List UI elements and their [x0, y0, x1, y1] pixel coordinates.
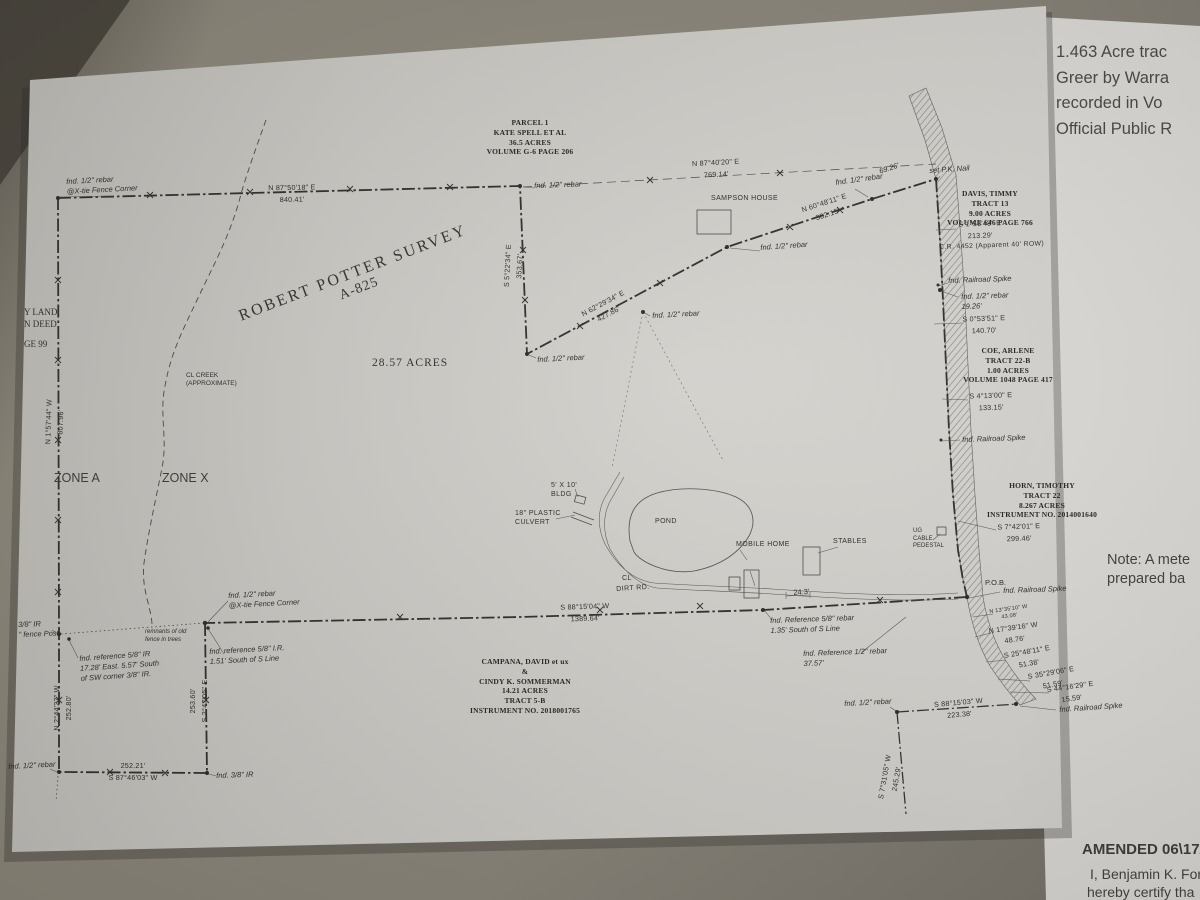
monument-rebar-xtie-south: fnd. 1/2" rebar @X-tie Fence Corner: [228, 587, 300, 611]
bearing-text: S 88°15'03" W: [934, 697, 984, 710]
reference-rebar-58: fnd. Reference 5/8" rebar 1.35' South of…: [770, 613, 855, 636]
feature-line: PEDESTAL: [913, 543, 944, 551]
remnants-note: remnants of old fence in trees: [145, 629, 186, 645]
corner-dot: [870, 197, 874, 201]
feature-line: CABLE: [913, 536, 944, 544]
reference-rebar-sw: fnd. reference 5/8" IR 17.28' East. 5.57…: [79, 648, 160, 684]
corner-dot: [518, 184, 522, 188]
monument-rebar-nw: fnd. 1/2" rebar @X-tie Fence Corner: [66, 173, 138, 197]
feature-line: CL CREEK: [186, 372, 237, 380]
culvert-label: 18" PLASTIC CULVERT: [515, 509, 561, 527]
bearing-text: N 1°57'44" W: [44, 399, 54, 444]
tract-acreage: 28.57 ACRES: [372, 357, 448, 369]
certification-line: hereby certify tha: [1087, 884, 1194, 900]
bearing-s24705: 253.60' S 2°47'05" E: [189, 680, 209, 723]
bearing-text: S 5°22'34" E: [503, 244, 514, 287]
culvert-lines: [571, 512, 594, 525]
corner-dot: [725, 245, 729, 249]
monument-rebar-topcenter: fnd. 1/2" rebar: [534, 179, 582, 191]
dirt-road-lines: [599, 472, 958, 600]
parcel-kate-spell: PARCEL 1 KATE SPELL ET AL 36.5 ACRES VOL…: [450, 118, 610, 157]
bearing-n15744: N 1°57'44" W 807.96': [44, 399, 66, 445]
note-line: remnants of old: [145, 629, 186, 637]
bearing-text: S 7°42'01" E: [997, 522, 1040, 532]
bearing-s52234: S 5°22'34" E 353.67': [503, 244, 525, 288]
parcel-line: Y LAND: [24, 306, 57, 318]
parcel-line: PARCEL 1: [450, 118, 610, 128]
corner-dot: [937, 284, 940, 287]
feature-line: UG: [913, 528, 944, 536]
bearing-text: S 4°13'00" E: [969, 391, 1012, 401]
parcel-line: TRACT 13: [930, 199, 1050, 209]
bearing-n24427: N 2°44'27" W 252.80': [53, 685, 73, 730]
offset-243: 24.3': [793, 587, 810, 598]
parcel-line: DAVIS, TIMMY: [930, 189, 1050, 199]
pond-label: POND: [655, 517, 677, 526]
distance-text: 252.80': [65, 685, 74, 730]
distance-text: 140.70': [963, 326, 1006, 336]
parcel-campana: CAMPANA, DAVID et ux & CINDY K. SOMMERMA…: [445, 657, 605, 716]
distance-text: 19.26': [961, 300, 1009, 312]
bearing-s41300: S 4°13'00" E 133.15': [969, 391, 1012, 413]
sampson-house-label: SAMPSON HOUSE: [711, 194, 778, 203]
monument-fence-post: 3/8" IR " fence Post: [18, 619, 59, 641]
bearing-s15343: S 1°53'43" E 213.29': [958, 219, 1001, 241]
note-line: fence in trees: [145, 637, 186, 645]
distance-text: 213.29': [959, 231, 1002, 241]
corner-dot: [641, 310, 645, 314]
stables-label: STABLES: [833, 537, 867, 546]
feature-line: BLDG: [551, 490, 577, 499]
flood-zone-x: ZONE X: [162, 471, 209, 485]
distance-text: 133.15': [970, 403, 1013, 413]
corner-dot: [56, 196, 60, 200]
corner-dot: [940, 439, 943, 442]
corner-dot: [934, 177, 938, 181]
parcel-line: 1.00 ACRES: [948, 366, 1068, 376]
bearing-text: S 0°53'51" E: [962, 314, 1005, 324]
ug-pedestal-label: UG CABLE PEDESTAL: [913, 528, 944, 551]
bearing-text: S 87°46'03" W: [109, 774, 158, 783]
bearing-text: S 88°15'04" W: [560, 602, 609, 612]
survey-photo: 1.463 Acre trac Greer by Warra recorded …: [0, 0, 1200, 900]
bearing-text: S 1°53'43" E: [958, 219, 1001, 229]
bearing-text: S 2°47'05" E: [201, 680, 210, 723]
parcel-line: VOLUME G-6 PAGE 206: [450, 147, 610, 157]
creek-label: CL CREEK (APPROXIMATE): [186, 372, 237, 388]
corner-dot: [57, 770, 61, 774]
amended-text: AMENDED 06\17/20: [1082, 841, 1200, 858]
parcel-line: TRACT 5-B: [445, 696, 605, 706]
distance-text: 1389.64': [561, 614, 610, 624]
parcel-line: 8.267 ACRES: [975, 501, 1109, 511]
monument-rebar-road: fnd. 1/2" rebar 19.26': [961, 290, 1009, 312]
side-document-text: 1.463 Acre trac Greer by Warra recorded …: [1056, 40, 1172, 143]
parcel-line: COE, ARLENE: [948, 346, 1068, 356]
corner-dot: [205, 771, 209, 775]
parcel-line: 14.21 ACRES: [445, 686, 605, 696]
corner-dot: [895, 710, 899, 714]
distance-text: 840.41': [268, 195, 316, 204]
feature-line: 5' X 10': [551, 481, 577, 490]
dirt-road-cl-label: CL: [622, 574, 632, 583]
side-doc-line: Official Public R: [1056, 117, 1172, 143]
feature-line: (APPROXIMATE): [186, 380, 237, 388]
reference-rebar-12: fnd. Reference 1/2" rebar 37.57': [803, 646, 888, 669]
bearing-text: N 2°44'27" W: [53, 685, 62, 730]
parcel-line: 9.00 ACRES: [930, 209, 1050, 219]
mobile-home-outline: [744, 570, 759, 598]
feature-line: 18" PLASTIC: [515, 509, 561, 518]
corner-dot: [938, 288, 942, 292]
monument-text: " fence Post: [18, 629, 59, 641]
south-adjoiner-lines: [897, 704, 1018, 814]
bearing-s74201: S 7°42'01" E 299.46': [997, 522, 1040, 544]
parcel-line: TRACT 22: [975, 491, 1109, 501]
sampson-house-outline: [697, 210, 731, 234]
side-doc-line: recorded in Vo: [1056, 91, 1172, 117]
stables-outline: [803, 547, 820, 575]
parcel-coe: COE, ARLENE TRACT 22-B 1.00 ACRES VOLUME…: [948, 346, 1068, 385]
parcel-line: GE 99: [24, 338, 57, 350]
corner-dot: [761, 608, 765, 612]
monument-text: fnd. 1/2" rebar: [961, 290, 1009, 302]
distance-text: 253.60': [189, 680, 198, 723]
parcel-line: CINDY K. SOMMERMAN: [445, 677, 605, 687]
distance-text: 807.96': [56, 399, 66, 444]
parcel-line: &: [445, 667, 605, 677]
interior-fence-dotted: [612, 312, 724, 468]
parcel-line: INSTRUMENT NO. 2018001765: [445, 706, 605, 716]
parcel-line: VOLUME 1048 PAGE 417: [948, 375, 1068, 385]
parcel-edge-clipped: Y LAND N DEED GE 99: [24, 306, 57, 350]
note-line: Note: A mete: [1107, 551, 1190, 570]
parcel-line: 36.5 ACRES: [450, 138, 610, 148]
side-doc-line: Greer by Warra: [1056, 66, 1172, 92]
monument-ir-38: fnd. 3/8" IR: [216, 770, 254, 781]
bearing-s881504: S 88°15'04" W 1389.64': [560, 602, 610, 624]
distance-text: 252.21': [109, 762, 158, 771]
bearing-n875018: N 87°50'18" E 840.41': [268, 183, 316, 204]
bearing-s05351: S 0°53'51" E 140.70': [962, 314, 1005, 336]
parcel-line: KATE SPELL ET AL: [450, 128, 610, 138]
certification-line: I, Benjamin K. For: [1090, 866, 1200, 882]
note-text: Note: A mete prepared ba: [1107, 551, 1190, 589]
note-line: prepared ba: [1107, 570, 1190, 589]
mobile-home-label: MOBILE HOME: [736, 540, 790, 549]
corner-dot: [1014, 702, 1018, 706]
bearing-n874020: N 87°40'20" E 769.14': [692, 158, 740, 181]
parcel-line: HORN, TIMOTHY: [975, 481, 1109, 491]
corner-dot: [525, 352, 529, 356]
parcel-line: TRACT 22-B: [948, 356, 1068, 366]
parcel-line: CAMPANA, DAVID et ux: [445, 657, 605, 667]
parcel-line: N DEED: [24, 318, 57, 330]
reference-rebar-sline: fnd. reference 5/8" I.R. 1.51' South of …: [209, 643, 285, 667]
distance-text: 299.46': [998, 534, 1041, 544]
small-bldg-label: 5' X 10' BLDG: [551, 481, 577, 499]
corner-dot: [965, 595, 969, 599]
pond-outline: [629, 489, 753, 572]
corner-dot: [206, 626, 210, 630]
bearing-text: N 87°50'18" E: [268, 183, 316, 192]
corner-dot: [67, 637, 71, 641]
corner-dot: [203, 621, 207, 625]
feature-line: CULVERT: [515, 518, 561, 527]
parcel-line: INSTRUMENT NO. 2014001640: [975, 510, 1109, 520]
side-doc-line: 1.463 Acre trac: [1056, 40, 1172, 66]
flood-zone-a: ZONE A: [54, 471, 100, 485]
parcel-horn: HORN, TIMOTHY TRACT 22 8.267 ACRES INSTR…: [975, 481, 1109, 520]
bearing-text: N 87°40'20" E: [692, 158, 740, 169]
bearing-s874603: 252.21' S 87°46'03" W: [109, 762, 158, 782]
shed-outline: [729, 577, 740, 590]
bearing-s881503: S 88°15'03" W 223.38': [934, 697, 985, 721]
